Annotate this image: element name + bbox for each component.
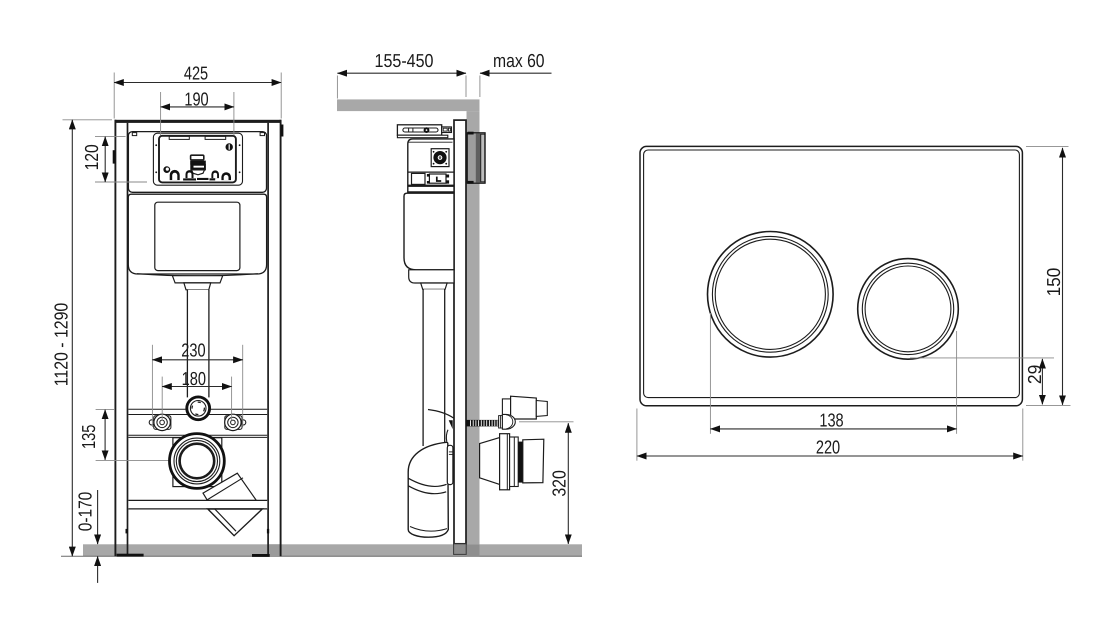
svg-text:29: 29 bbox=[1024, 365, 1045, 385]
svg-text:320: 320 bbox=[549, 470, 570, 497]
svg-text:135: 135 bbox=[78, 425, 99, 450]
svg-text:120: 120 bbox=[81, 144, 102, 170]
svg-text:1120 - 1290: 1120 - 1290 bbox=[51, 303, 72, 387]
svg-text:230: 230 bbox=[181, 340, 205, 361]
svg-text:max 60: max 60 bbox=[493, 50, 545, 71]
svg-text:138: 138 bbox=[819, 409, 843, 430]
svg-text:150: 150 bbox=[1043, 268, 1064, 297]
svg-text:425: 425 bbox=[184, 63, 208, 84]
svg-text:0-170: 0-170 bbox=[75, 492, 96, 532]
svg-text:180: 180 bbox=[182, 368, 206, 389]
svg-text:220: 220 bbox=[816, 436, 840, 457]
svg-text:190: 190 bbox=[184, 89, 208, 110]
svg-text:155-450: 155-450 bbox=[375, 50, 434, 71]
